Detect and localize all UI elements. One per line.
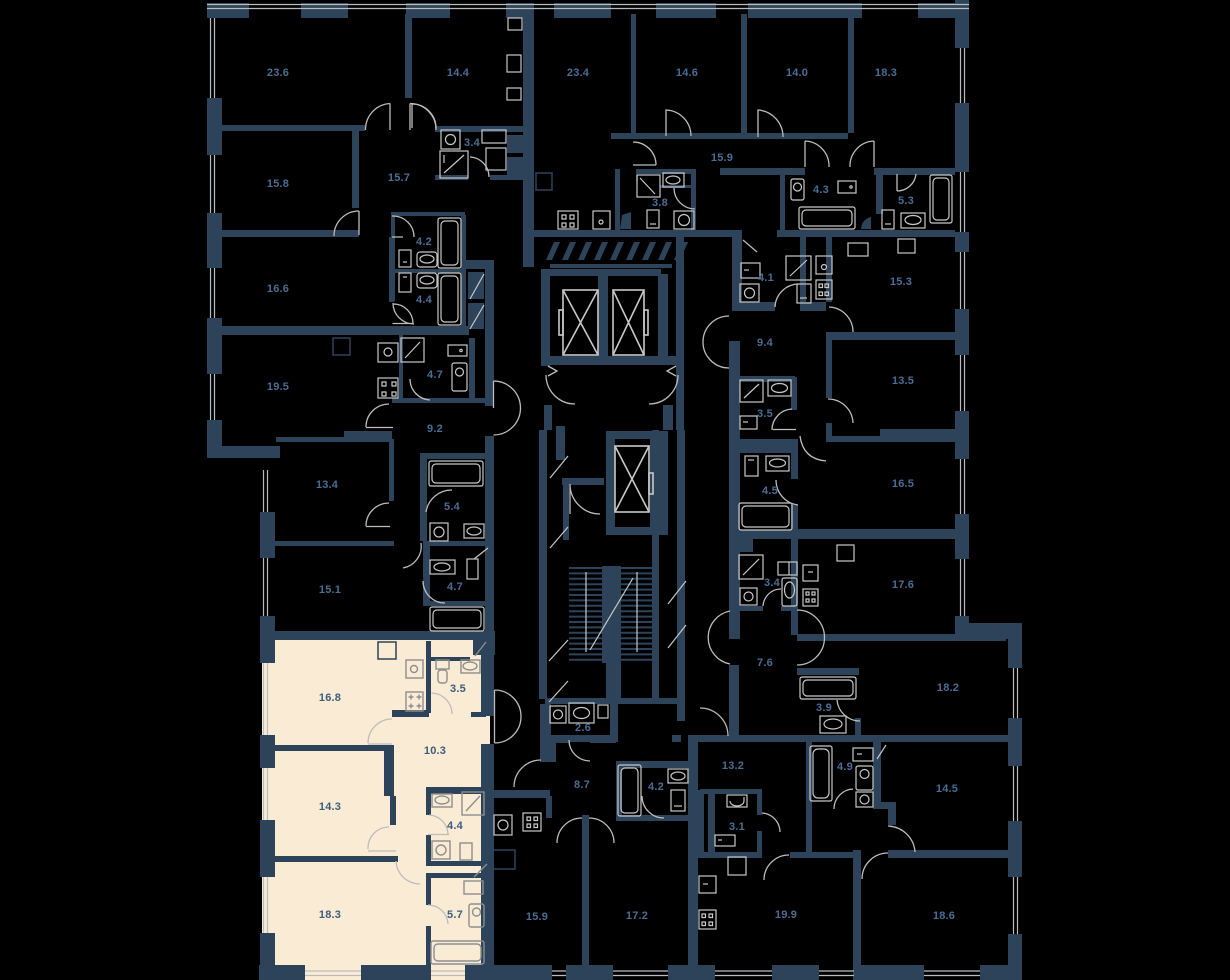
svg-text:18.2: 18.2: [937, 682, 959, 694]
svg-text:3.5: 3.5: [757, 408, 773, 420]
svg-text:15.7: 15.7: [388, 172, 410, 184]
svg-text:14.6: 14.6: [676, 67, 698, 79]
svg-text:14.0: 14.0: [786, 67, 808, 79]
svg-text:16.6: 16.6: [267, 283, 289, 295]
svg-text:16.8: 16.8: [319, 692, 341, 704]
svg-text:3.9: 3.9: [816, 702, 832, 714]
svg-text:23.6: 23.6: [267, 67, 289, 79]
svg-text:5.4: 5.4: [444, 501, 461, 513]
svg-text:18.6: 18.6: [933, 910, 955, 922]
svg-text:4.3: 4.3: [813, 184, 829, 196]
svg-text:10.3: 10.3: [424, 745, 446, 757]
svg-text:7.6: 7.6: [757, 657, 773, 669]
svg-text:18.3: 18.3: [319, 909, 341, 921]
svg-text:5.7: 5.7: [447, 909, 463, 921]
svg-text:15.9: 15.9: [526, 911, 548, 923]
svg-text:14.3: 14.3: [319, 801, 341, 813]
svg-text:5.3: 5.3: [898, 195, 914, 207]
svg-text:4.5: 4.5: [762, 485, 778, 497]
svg-text:17.2: 17.2: [626, 910, 648, 922]
svg-text:4.1: 4.1: [758, 272, 774, 284]
svg-text:4.2: 4.2: [416, 236, 432, 248]
svg-text:15.8: 15.8: [267, 178, 289, 190]
svg-text:4.4: 4.4: [416, 294, 433, 306]
svg-text:18.3: 18.3: [875, 67, 897, 79]
svg-text:9.4: 9.4: [757, 337, 774, 349]
svg-text:14.5: 14.5: [936, 783, 958, 795]
svg-text:13.5: 13.5: [892, 375, 914, 387]
svg-text:15.3: 15.3: [890, 276, 912, 288]
svg-text:3.4: 3.4: [464, 137, 481, 149]
svg-text:16.5: 16.5: [892, 478, 914, 490]
svg-text:3.4: 3.4: [764, 577, 781, 589]
svg-text:15.1: 15.1: [319, 584, 341, 596]
svg-text:3.1: 3.1: [729, 821, 745, 833]
svg-text:2.6: 2.6: [575, 722, 591, 734]
svg-text:4.7: 4.7: [427, 369, 443, 381]
svg-text:8.7: 8.7: [574, 779, 590, 791]
svg-text:15.9: 15.9: [711, 152, 733, 164]
svg-text:17.6: 17.6: [892, 579, 914, 591]
svg-text:19.5: 19.5: [267, 381, 289, 393]
svg-text:4.9: 4.9: [837, 761, 853, 773]
svg-text:4.2: 4.2: [648, 781, 664, 793]
svg-text:23.4: 23.4: [567, 67, 590, 79]
svg-text:14.4: 14.4: [447, 67, 470, 79]
svg-text:13.2: 13.2: [722, 760, 744, 772]
svg-text:4.4: 4.4: [447, 820, 464, 832]
svg-text:3.8: 3.8: [652, 197, 668, 209]
svg-text:9.2: 9.2: [427, 423, 443, 435]
svg-text:19.9: 19.9: [775, 909, 797, 921]
svg-text:4.7: 4.7: [447, 581, 463, 593]
svg-text:13.4: 13.4: [316, 479, 339, 491]
svg-text:3.5: 3.5: [450, 683, 466, 695]
